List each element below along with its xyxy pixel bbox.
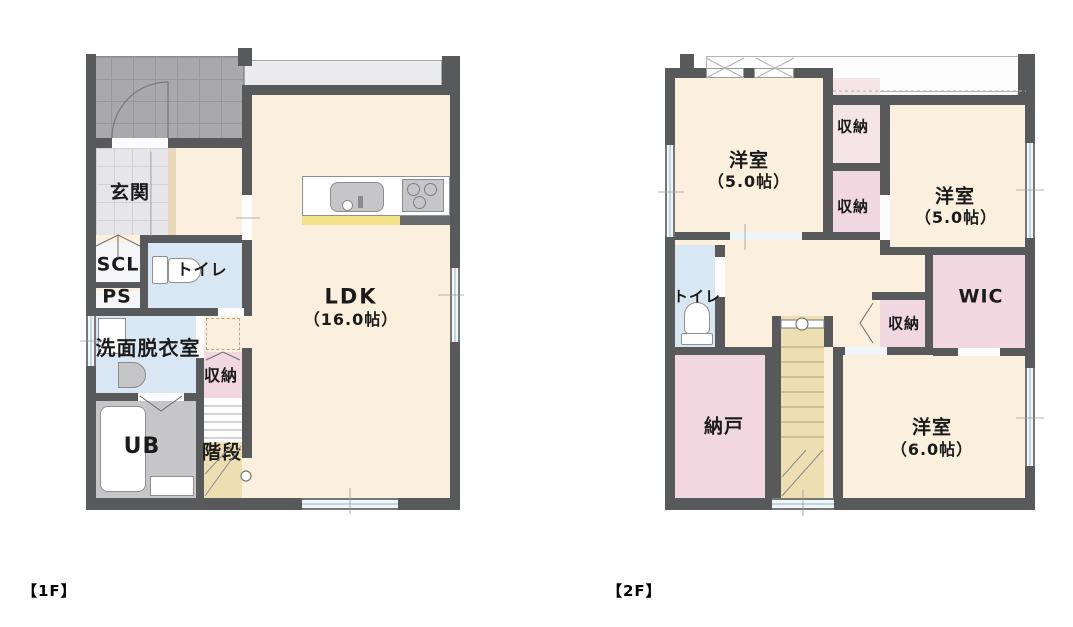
room-label-ldk-size: （16.0帖） <box>304 312 398 328</box>
washing-machine-icon <box>118 362 146 388</box>
bath-mat-icon <box>150 476 194 496</box>
floor2-caption: 【2F】 <box>607 580 662 601</box>
toilet-tank-icon <box>681 333 713 345</box>
counter-front-dark <box>400 216 450 225</box>
door-opening <box>138 393 184 401</box>
wall <box>242 240 252 308</box>
toilet-bowl-icon <box>684 302 710 334</box>
room-label-ldk: LDK <box>324 287 377 308</box>
wall <box>823 78 833 240</box>
fixed-window <box>754 68 794 78</box>
room-label-scl: SCL <box>97 256 140 275</box>
wall <box>450 342 460 498</box>
room-label-yoshitsu-nw: 洋室 <box>729 152 769 171</box>
wall <box>665 347 775 355</box>
room-label-yoshitsu-nw-size: （5.0帖） <box>708 174 790 190</box>
room-label-closet-a: 収納 <box>837 120 869 135</box>
kitchen-sink-icon <box>330 182 384 212</box>
wall <box>880 247 1035 255</box>
room-label-yoshitsu-s-size: （6.0帖） <box>891 442 973 458</box>
window <box>86 316 96 366</box>
wall <box>665 498 1035 510</box>
room-label-yoshitsu-s: 洋室 <box>912 419 952 438</box>
wall <box>1018 54 1035 95</box>
ldk-floor-upper <box>252 95 450 146</box>
burner-icon <box>407 183 420 196</box>
door-opening <box>958 348 1000 356</box>
room-label-ub: UB <box>124 436 161 458</box>
wall <box>450 95 460 268</box>
front-door-opening <box>112 138 168 148</box>
sliding-door-opening <box>845 347 887 355</box>
entrance-porch-tile <box>88 56 244 146</box>
window <box>302 498 398 510</box>
wall <box>148 235 242 243</box>
genkan-step <box>168 148 176 235</box>
window <box>665 145 675 237</box>
room-label-genkan: 玄関 <box>110 184 150 203</box>
stairs-1f-upper <box>204 398 242 442</box>
wall <box>242 85 460 95</box>
room-label-toilet-2f: トイレ <box>673 290 721 305</box>
wall <box>823 95 1035 105</box>
room-label-closet-c: 収納 <box>888 317 920 332</box>
counter-front-yellow <box>302 216 400 225</box>
floor-plan-canvas: 玄関 SCL PS トイレ 洗面脱衣室 UB 階段 収納 LDK （16.0帖） <box>0 0 1073 627</box>
wall <box>86 393 138 401</box>
door-opening <box>218 308 244 316</box>
wall <box>680 54 694 68</box>
wall <box>86 498 460 510</box>
wall <box>242 348 252 458</box>
wall <box>925 255 933 355</box>
wall <box>140 235 148 308</box>
sliding-door-opening <box>730 232 802 240</box>
room-label-yoshitsu-ne: 洋室 <box>935 188 975 207</box>
room-label-yoshitsu-ne-size: （5.0帖） <box>915 210 997 226</box>
wall <box>86 54 96 140</box>
stairs-2f <box>781 316 824 498</box>
wall <box>824 316 833 347</box>
room-label-ps: PS <box>102 288 132 307</box>
eave-strip-1f <box>244 60 442 88</box>
toilet-tank-icon <box>152 256 168 284</box>
wall <box>833 163 880 171</box>
wall <box>242 95 252 195</box>
wall <box>238 48 252 66</box>
room-label-closet-b: 収納 <box>837 200 869 215</box>
room-label-closet-1f: 収納 <box>204 368 238 384</box>
door-opening <box>880 195 890 240</box>
wall <box>86 138 252 148</box>
floor1-caption: 【1F】 <box>22 580 77 601</box>
window <box>1025 368 1035 466</box>
window <box>450 268 460 342</box>
wall <box>833 347 843 498</box>
sink-drain-icon <box>342 200 353 211</box>
room-label-wic: WIC <box>959 288 1004 307</box>
refrigerator-space <box>206 318 240 350</box>
window <box>1025 143 1035 238</box>
wall <box>665 68 833 78</box>
sink-faucet-icon <box>358 196 363 208</box>
window <box>772 498 834 510</box>
fixed-window <box>706 68 744 78</box>
door-opening <box>242 195 252 240</box>
room-label-nando: 納戸 <box>704 418 744 437</box>
room-label-stairs-1f: 階段 <box>202 444 242 463</box>
room-label-senmen: 洗面脱衣室 <box>96 338 201 358</box>
burner-icon <box>424 183 437 196</box>
room-label-toilet-1f: トイレ <box>176 262 227 278</box>
wall <box>772 316 781 498</box>
burner-icon <box>413 196 426 209</box>
wall <box>872 292 933 300</box>
